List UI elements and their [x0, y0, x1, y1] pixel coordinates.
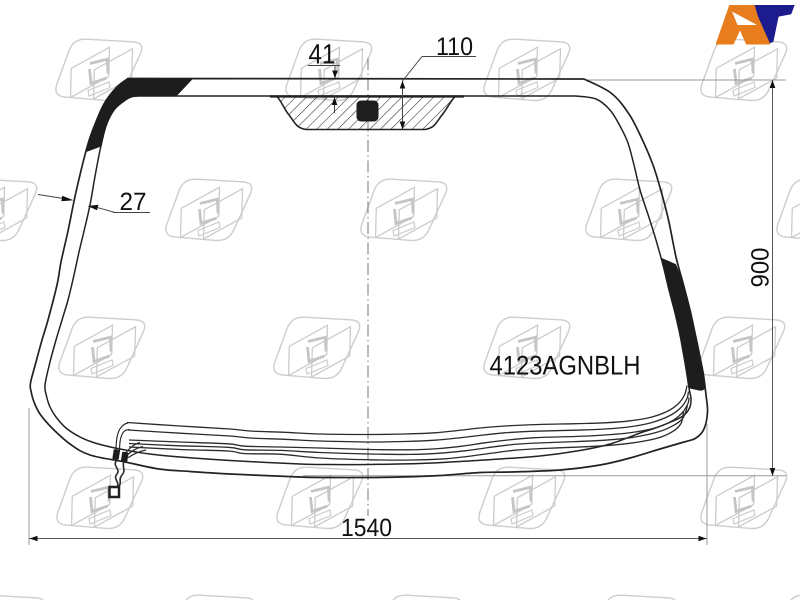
svg-text:27: 27 [119, 188, 146, 216]
svg-text:1540: 1540 [341, 514, 392, 542]
svg-text:900: 900 [746, 247, 774, 287]
svg-text:4123AGNBLH: 4123AGNBLH [489, 350, 640, 380]
svg-text:41: 41 [308, 38, 335, 69]
